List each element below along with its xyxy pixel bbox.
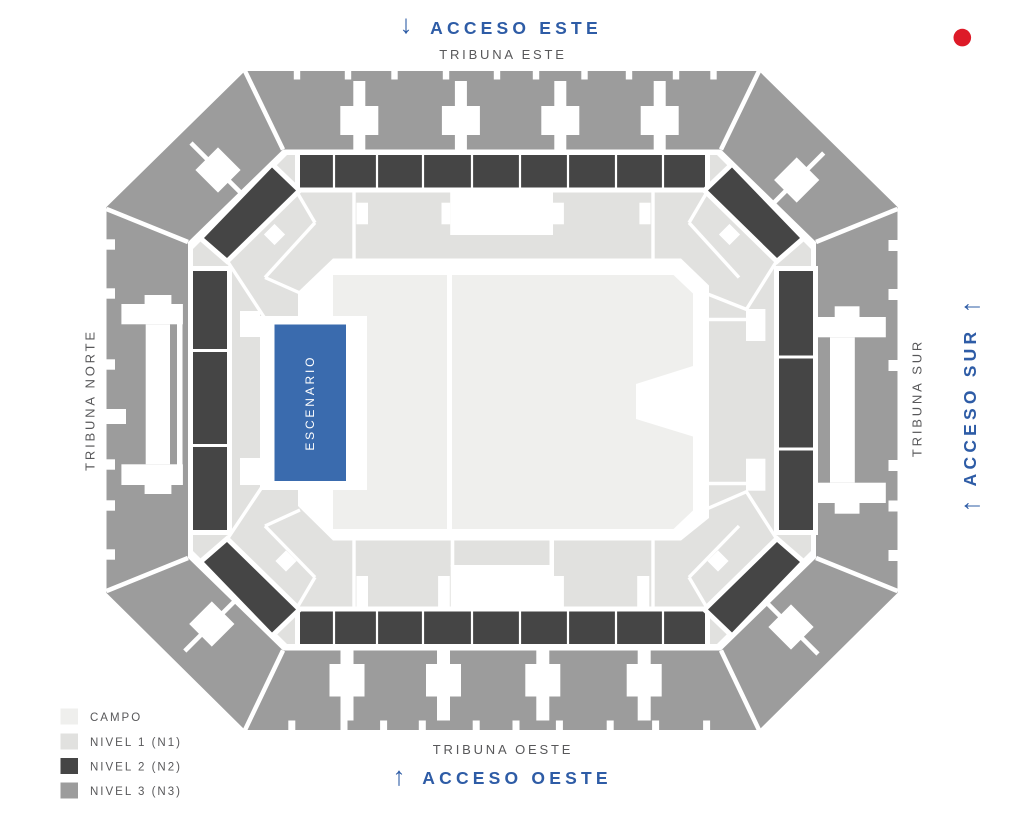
svg-text:↑: ↑: [955, 301, 985, 314]
svg-text:TRIBUNA OESTE: TRIBUNA OESTE: [433, 742, 573, 757]
svg-text:CAMPO: CAMPO: [90, 712, 142, 724]
svg-text:↓: ↓: [400, 9, 413, 39]
svg-text:NIVEL 1 (N1): NIVEL 1 (N1): [90, 737, 182, 749]
svg-text:ACCESO SUR: ACCESO SUR: [960, 328, 980, 487]
svg-text:ESCENARIO: ESCENARIO: [303, 355, 317, 451]
svg-text:ACCESO ESTE: ACCESO ESTE: [430, 18, 602, 38]
svg-text:TRIBUNA ESTE: TRIBUNA ESTE: [439, 47, 567, 62]
svg-text:↑: ↑: [955, 500, 985, 513]
svg-text:TRIBUNA SUR: TRIBUNA SUR: [910, 339, 925, 457]
svg-text:ACCESO OESTE: ACCESO OESTE: [422, 768, 611, 788]
svg-text:NIVEL 2 (N2): NIVEL 2 (N2): [90, 762, 182, 774]
svg-text:TRIBUNA NORTE: TRIBUNA NORTE: [83, 329, 98, 471]
svg-text:NIVEL 3 (N3): NIVEL 3 (N3): [90, 786, 182, 798]
svg-text:↑: ↑: [393, 761, 406, 791]
